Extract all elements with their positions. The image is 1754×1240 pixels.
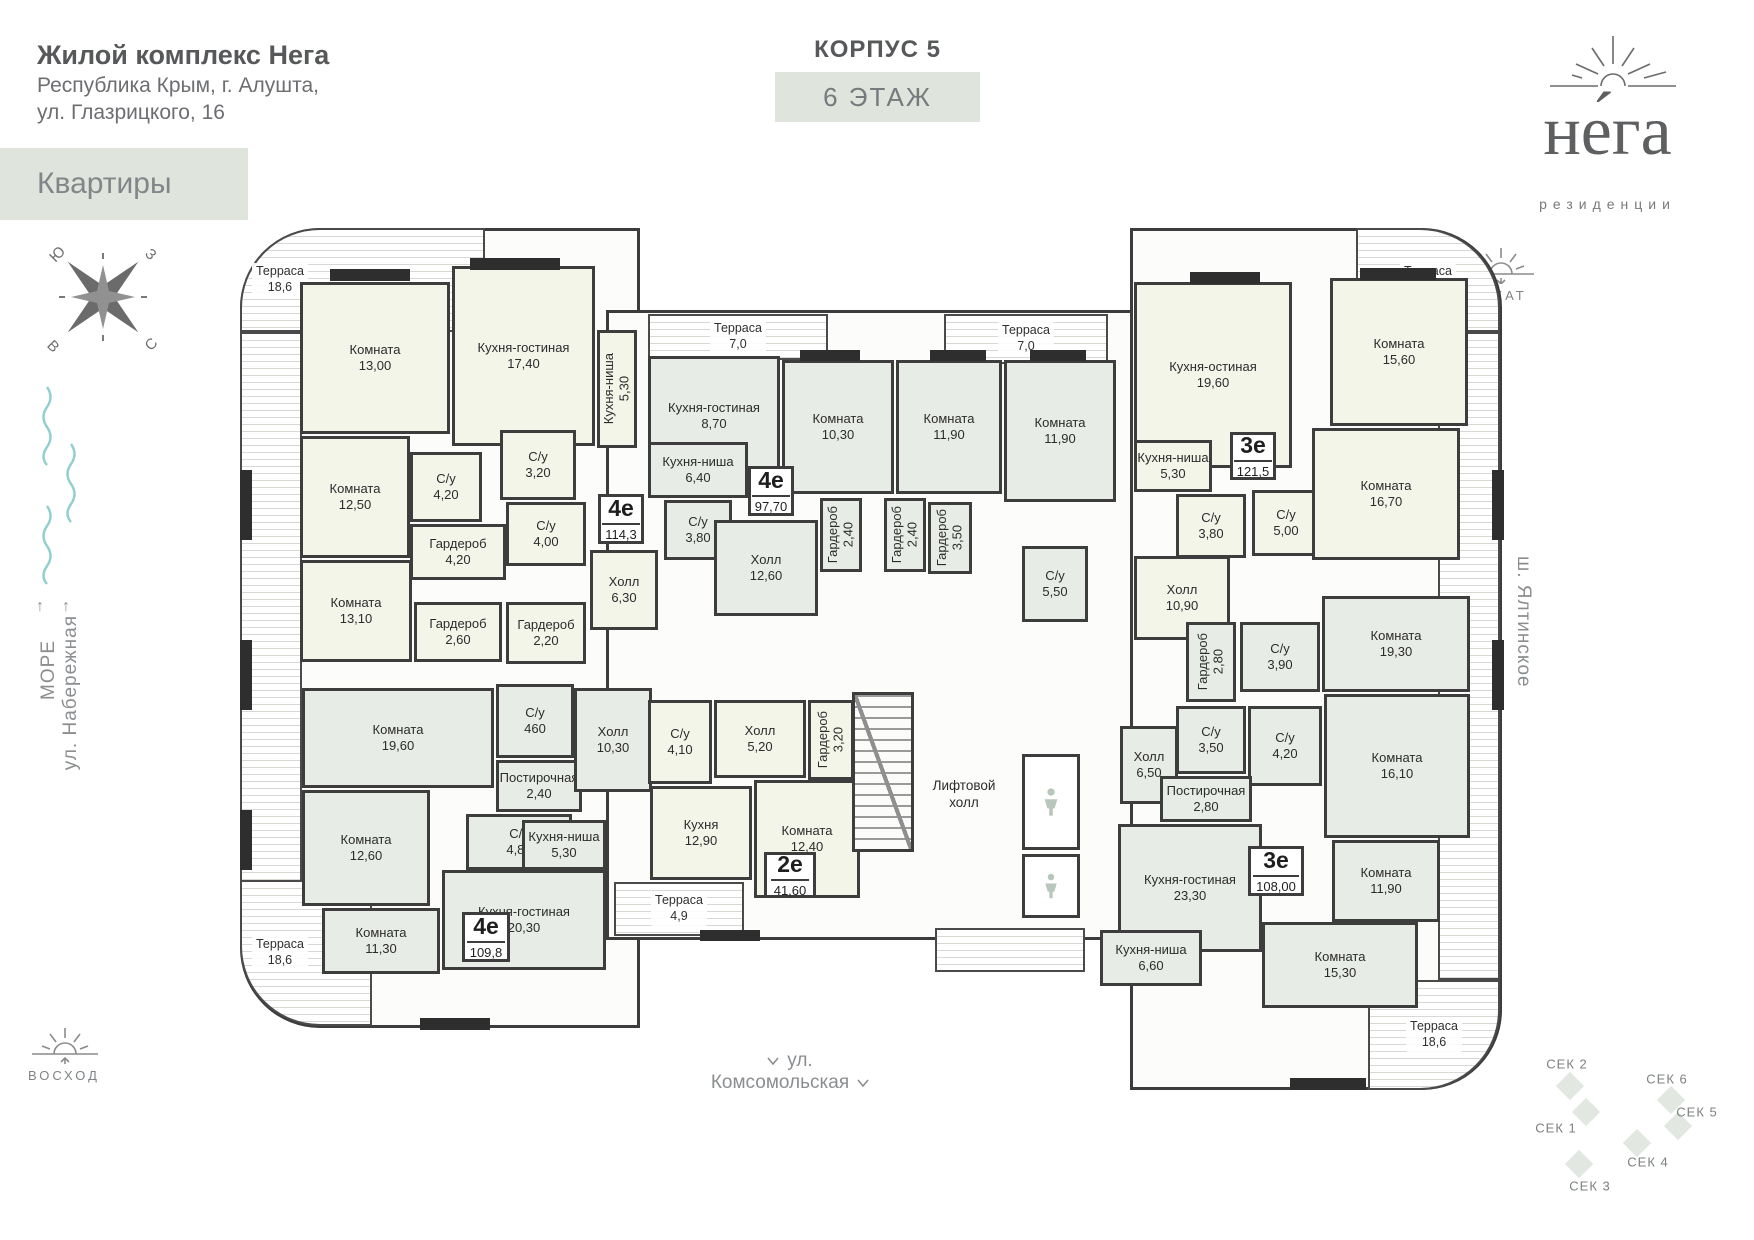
logo-wordmark: не́га [1500,92,1715,172]
terrace-label: Терраса18,6 [1406,1018,1462,1051]
embankment-street-label: ул. Набережная [60,615,82,770]
room-label: Гардероб3,50 [934,509,965,566]
window-block [1492,640,1504,710]
section-label: СЕК 4 [1627,1155,1668,1170]
room-label: Холл5,20 [745,723,776,754]
room: Холл6,30 [590,550,658,630]
window-block [240,810,252,870]
room-label: Постирочная2,40 [500,770,579,801]
apartment-type: 2е [777,853,803,876]
room-label: Кухня12,90 [684,817,719,848]
room: Кухня12,90 [650,786,752,880]
room: Комната11,30 [322,908,440,974]
room: Комната12,60 [302,790,430,906]
room: С/у4,20 [410,452,482,522]
room-label: С/у3,80 [685,514,710,545]
room: Комната16,10 [1324,694,1470,838]
building-title: КОРПУС 5 [775,36,980,64]
room-label: Кухня-ниша6,40 [662,454,733,485]
address-line-1: Республика Крым, г. Алушта, [37,74,319,98]
room-label: Комната12,40 [782,823,833,854]
room-label: Комната11,90 [1035,415,1086,446]
floor-selector[interactable]: 6 ЭТАЖ [775,72,980,122]
room-label: С/у4,00 [533,518,558,549]
apartment-type: 3е [1263,849,1289,872]
section-label: СЕК 6 [1646,1072,1687,1087]
room-label: С/у4,10 [667,726,692,757]
room-label: Гардероб2,40 [825,506,856,563]
wave-icon [64,442,78,524]
apartment-badge[interactable]: 3е121,5 [1230,432,1276,480]
apartment-area: 108,00 [1253,875,1299,894]
room: Комната11,90 [896,360,1002,494]
room: Гардероб2,80 [1186,622,1236,702]
apartment-badge[interactable]: 4е114,3 [598,494,644,544]
room-label: Комната16,70 [1361,478,1412,509]
room-label: Комната16,10 [1372,750,1423,781]
apartment-type: 4е [758,469,784,492]
room: С/у5,50 [1022,546,1088,622]
apartment-badge[interactable]: 4е109,8 [462,912,510,962]
chevron-down-icon [767,1056,779,1066]
room-label: Гардероб4,20 [429,536,486,567]
apartment-badge[interactable]: 3е108,00 [1248,846,1304,896]
room: Гардероб2,20 [506,602,586,664]
room: Холл5,20 [714,700,806,778]
room: Комната19,30 [1322,596,1470,692]
window-block [330,269,410,281]
logo-tagline: резиденции [1500,196,1715,212]
elevator-shaft [1022,754,1080,850]
room-label: С/у5,50 [1042,568,1067,599]
room-label: Комната13,10 [331,595,382,626]
room: Комната12,50 [300,436,410,558]
room: Холл12,60 [714,520,818,616]
section-diamond[interactable] [1623,1129,1651,1157]
apartment-area: 41,60 [771,879,810,898]
room-label: Комната19,30 [1371,628,1422,659]
elevator-person-icon [1042,872,1060,900]
room-label: С/у460 [524,705,546,736]
apartment-badge[interactable]: 2е41,60 [764,852,816,898]
room: Постирочная2,80 [1160,776,1252,822]
window-block [1290,1078,1366,1090]
room-label: Кухня-ниша5,30 [1137,450,1208,481]
room: Кухня-ниша6,40 [648,442,748,498]
room: Комната15,60 [1330,278,1468,426]
room: Кухня-ниша5,30 [1134,440,1212,492]
room: С/у4,00 [506,502,586,566]
room-label: Кухня-ниша5,30 [528,829,599,860]
lift-hall-label: Лифтовойхолл [908,778,1020,812]
room-label: Холл12,60 [750,552,783,583]
room: Гардероб2,40 [884,498,926,572]
sea-arrow-icon: ↑ [36,598,44,616]
terrace: Терраса4,9 [614,882,744,936]
room: Кухня-ниша5,30 [597,330,637,448]
apartment-type: 4е [608,497,634,520]
embankment-arrow-icon: ↑ [62,598,70,616]
window-block [240,470,252,540]
room-label: Комната15,60 [1374,336,1425,367]
room-label: С/у3,80 [1198,510,1223,541]
room-label: С/у4,20 [1272,730,1297,761]
room-label: Кухня-остиная19,60 [1169,359,1257,390]
elevator-shaft [1022,854,1080,918]
room-label: Кухня-гостиная17,40 [478,340,570,371]
room: С/у3,20 [500,430,576,500]
window-block [700,930,760,941]
window-block [240,640,252,710]
room: Кухня-ниша5,30 [522,820,606,870]
apartment-type: 4е [473,915,499,938]
window-block [420,1018,490,1030]
room-label: Кухня-ниша6,60 [1115,942,1186,973]
room: Комната19,60 [302,688,494,788]
room: Комната11,90 [1332,840,1440,922]
apartment-area: 114,3 [602,523,640,542]
sunrise-icon [30,1018,100,1064]
room-label: С/у3,50 [1198,724,1223,755]
window-block [930,350,986,361]
room: С/у4,20 [1248,706,1322,786]
room: Комната13,00 [300,282,450,434]
room-label: Кухня-гостиная23,30 [1144,872,1236,903]
room-label: Холл10,30 [597,724,630,755]
window-block [1190,272,1260,284]
room: Постирочная2,40 [496,760,582,812]
logo-sunburst-icon [1548,34,1678,96]
room: С/у3,80 [1176,494,1246,558]
room-label: Гардероб3,20 [815,711,846,768]
yalta-highway-label: ш. Ялтинское [1512,556,1534,688]
room-label: С/у5,00 [1273,507,1298,538]
terrace-label: Терраса4,9 [651,892,707,925]
room-label: Комната10,30 [813,411,864,442]
section-label: СЕК 2 [1546,1057,1587,1072]
room-label: Комната11,90 [924,411,975,442]
room-label: Кухня-гостиная8,70 [668,400,760,431]
room-label: С/у3,90 [1267,641,1292,672]
room: Комната16,70 [1312,428,1460,560]
room: Комната15,30 [1262,922,1418,1008]
window-block [1492,470,1504,540]
room: Гардероб2,40 [820,498,862,572]
room: Комната10,30 [782,360,894,494]
room-label: Комната12,60 [341,832,392,863]
room-label: Комната11,30 [356,925,407,956]
room-label: Холл6,30 [609,574,640,605]
room-label: Гардероб2,60 [429,616,486,647]
apartment-area: 121,5 [1234,460,1273,479]
room-label: Комната15,30 [1315,949,1366,980]
room-label: Кухня-ниша5,30 [601,353,632,424]
apartment-area: 109,8 [467,941,506,960]
room: Гардероб3,20 [808,700,854,780]
room: Кухня-ниша6,60 [1100,930,1202,986]
room: С/у3,90 [1240,622,1320,692]
wave-icon [40,385,54,467]
room-label: Комната11,90 [1361,865,1412,896]
room: Комната11,90 [1004,360,1116,502]
elevator-person-icon [1041,786,1061,818]
room: Гардероб3,50 [928,502,972,574]
apartment-area: 97,70 [752,495,791,514]
room: Гардероб2,60 [414,602,502,662]
room: Комната13,10 [300,560,412,662]
room-label: С/у4,20 [433,471,458,502]
section-label: СЕК 1 [1535,1121,1576,1136]
chevron-down-icon [857,1078,869,1088]
room-label: Гардероб2,20 [517,617,574,648]
section-label: СЕК 3 [1569,1179,1610,1194]
room-label: Гардероб2,40 [889,506,920,563]
window-block [1030,350,1086,361]
window-block [1360,268,1436,280]
room-label: Комната13,00 [350,342,401,373]
section-label: СЕК 5 [1676,1105,1717,1120]
staircase [852,692,914,852]
room: Гардероб4,20 [410,524,506,580]
sunrise-label: ВОСХОД [28,1068,100,1083]
komsomolskaya-street-label: ул. Комсомольская [700,1050,880,1094]
room-label: С/у3,20 [525,449,550,480]
room: С/у4,10 [648,700,712,784]
room: С/у5,00 [1252,490,1320,556]
terrace-strip [935,928,1085,972]
room: С/у460 [496,684,574,758]
section-diamond[interactable] [1556,1072,1584,1100]
wave-icon [40,504,54,586]
room-label: Гардероб2,80 [1195,633,1226,690]
room-label: Постирочная2,80 [1167,783,1246,814]
room-label: Комната19,60 [373,722,424,753]
terrace-label: Терраса7,0 [710,320,766,353]
room: С/у3,50 [1176,706,1246,774]
room: Кухня-гостиная17,40 [452,266,595,446]
room: Холл10,30 [574,688,652,792]
apartments-button[interactable]: Квартиры [0,148,248,220]
sea-label: МОРЕ [38,640,60,700]
window-block [800,350,860,361]
window-block [470,258,560,270]
apartment-type: 3е [1240,434,1266,457]
room-label: Холл10,90 [1166,582,1199,613]
terrace-label: Терраса18,6 [252,936,308,969]
address-line-2: ул. Глазрицкого, 16 [37,101,225,125]
apartment-badge[interactable]: 4е97,70 [748,466,794,516]
room-label: Комната12,50 [330,481,381,512]
section-diamond[interactable] [1565,1150,1593,1178]
page-title: Жилой комплекс Нега [37,40,329,71]
